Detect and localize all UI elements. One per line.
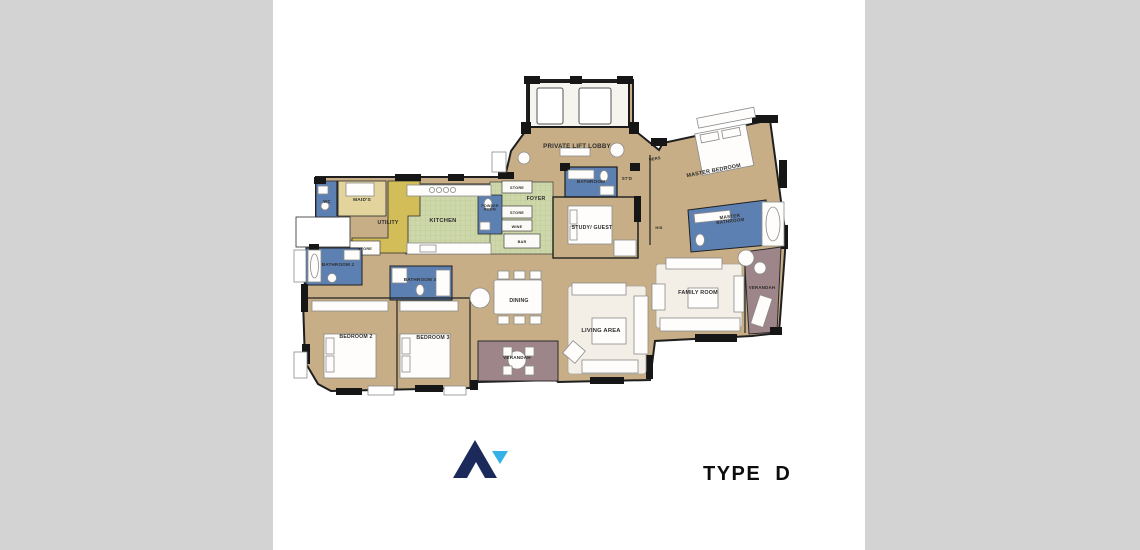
room-label-maids: MAID'S [353,197,371,203]
logo-peak-shape [453,440,497,478]
room-label-wine: WINE [512,225,523,229]
room-label-bathroom-3: BATHROOM 3 [404,277,437,282]
room-label-bedroom-3: BEDROOM 3 [416,335,449,341]
page: PRIVATE LIFT LOBBYWCMAID'SUTILITYSTOREKI… [0,0,1140,550]
room-label-utility: UTILITY [378,220,399,226]
room-label-verandah-right: VERANDAH [749,285,775,290]
brand-logo [446,434,516,484]
room-label-std: ST'D [622,176,632,181]
room-label-study-guest: STUDY/ GUEST [572,225,613,231]
room-label-bar: BAR [518,240,527,244]
lift-shafts [529,82,629,127]
room-label-bedroom-2: BEDROOM 2 [339,334,372,340]
room-label-family-room: FAMILY ROOM [678,290,718,296]
logo-triangle-shape [492,451,508,464]
room-label-store-utility: STORE [358,247,372,251]
room-label-private-lift-lobby: PRIVATE LIFT LOBBY [543,143,611,150]
room-label-his: HIS [655,225,662,230]
maids-furniture [346,183,374,196]
room-label-verandah-bottom: VERANDAH [503,355,531,360]
room-label-bathroom: BATHROOM [577,179,605,184]
room-label-foyer: FOYER [527,196,546,202]
floorplan-drawing: PRIVATE LIFT LOBBYWCMAID'SUTILITYSTOREKI… [0,0,1140,550]
room-label-kitchen: KITCHEN [429,218,456,224]
room-label-dining: DINING [509,298,528,304]
room-label-wc: WC [323,199,330,204]
room-label-store-upper: STORE [510,186,524,190]
room-label-living-area: LIVING AREA [581,328,621,334]
room-label-bathroom-2: BATHROOM 2 [322,262,355,267]
unit-type-label: TYPE D [703,463,791,486]
room-label-store-lower: STORE [510,211,524,215]
